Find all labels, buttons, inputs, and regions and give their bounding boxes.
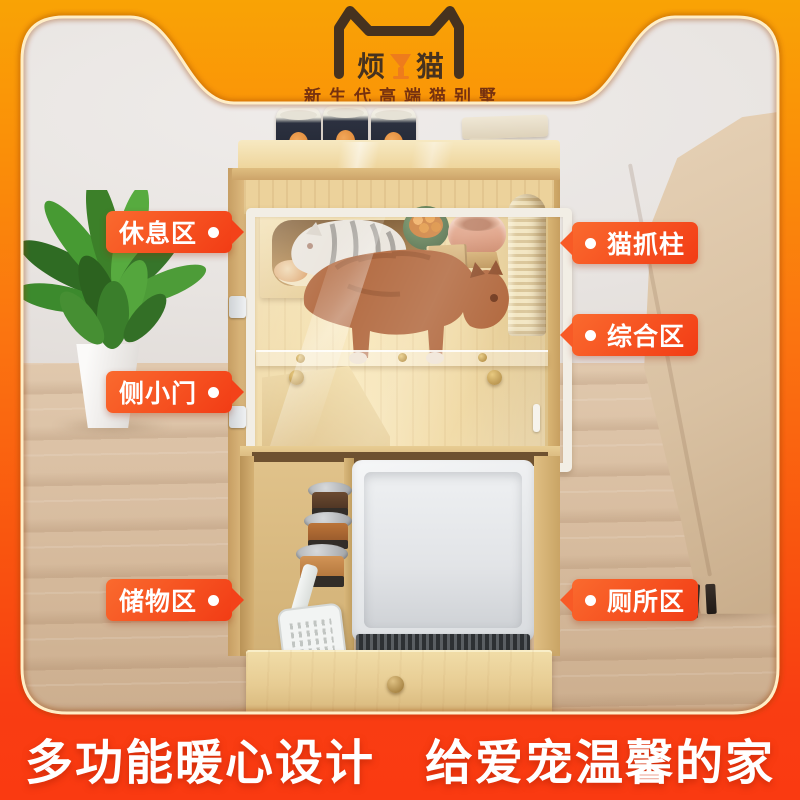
drawer-knob (387, 676, 404, 693)
callout-rest-area: 休息区 (106, 211, 232, 253)
callout-toilet-area: 厕所区 (572, 579, 698, 621)
drawer-left-wall (240, 456, 254, 656)
callout-label: 综合区 (607, 317, 685, 353)
cabinet-top-edge (232, 168, 560, 180)
callout-dot (585, 330, 596, 341)
callout-dot (585, 238, 596, 249)
callout-dot (208, 595, 219, 606)
callout-dot (208, 227, 219, 238)
food-pack (462, 115, 549, 140)
brand-header: 烦 猫 (0, 0, 800, 87)
glass-door-frame (246, 208, 572, 472)
brand-char-right: 猫 (416, 51, 444, 82)
door-hinge (229, 406, 246, 428)
callout-label: 厕所区 (607, 582, 685, 618)
callout-label: 侧小门 (119, 374, 197, 410)
brand-logo: 烦 猫 (0, 0, 800, 82)
sofa-leg (705, 584, 717, 614)
drawer-right-wall (534, 456, 560, 656)
callout-side-door: 侧小门 (106, 371, 232, 413)
footer-slogan: 多功能暖心设计 给爱宠温馨的家 (0, 723, 800, 793)
callout-storage-area: 储物区 (106, 579, 232, 621)
callout-dot (208, 387, 219, 398)
litter-box-interior (364, 472, 522, 628)
litter-box (352, 460, 534, 642)
callout-label: 休息区 (119, 214, 197, 250)
callout-dot (585, 595, 596, 606)
callout-combined-area: 综合区 (572, 314, 698, 356)
door-handle (533, 404, 540, 432)
poster: 烦 猫 新生代高端猫别墅 休息区 侧小门 储物区 猫抓柱 综合区 厕所区 多功能… (0, 0, 800, 800)
cabinet-top-surface (238, 140, 560, 170)
door-hinge (229, 296, 246, 318)
callout-label: 储物区 (119, 582, 197, 618)
callout-label: 猫抓柱 (607, 225, 685, 261)
callout-scratch-post: 猫抓柱 (572, 222, 698, 264)
funnel-person-glyph (390, 54, 411, 79)
brand-char-left: 烦 (357, 51, 385, 82)
